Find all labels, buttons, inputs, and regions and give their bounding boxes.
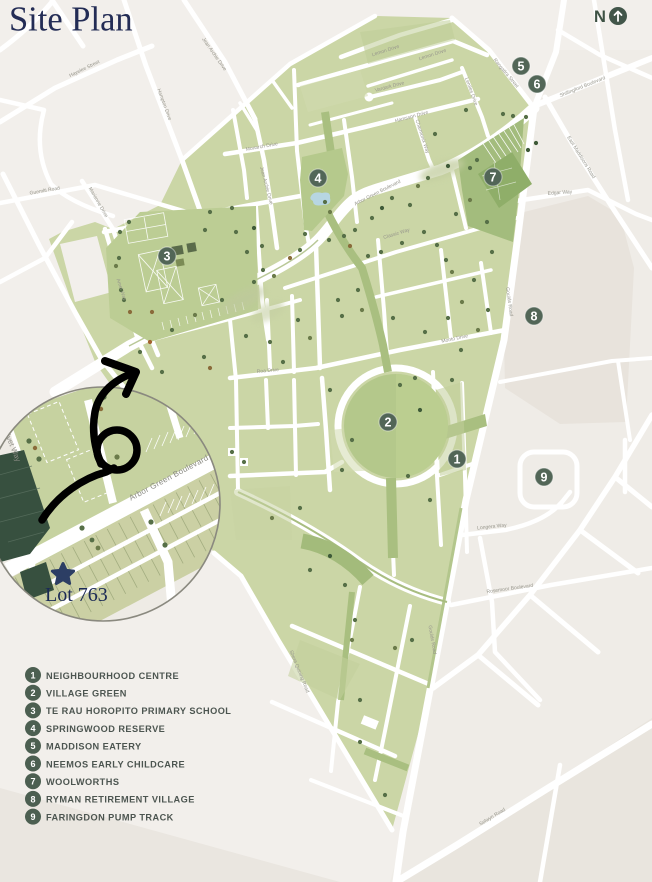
svg-text:NEIGHBOURHOOD CENTRE: NEIGHBOURHOOD CENTRE [46,671,179,681]
svg-text:7: 7 [490,171,497,185]
svg-text:N: N [594,8,606,26]
svg-text:1: 1 [30,670,35,680]
svg-text:6: 6 [534,78,541,92]
svg-text:8: 8 [30,794,35,804]
svg-text:3: 3 [30,706,35,716]
svg-text:MADDISON EATERY: MADDISON EATERY [46,742,142,752]
svg-text:TE RAU HOROPITO PRIMARY SCHOOL: TE RAU HOROPITO PRIMARY SCHOOL [46,706,231,716]
svg-text:8: 8 [531,310,538,324]
svg-text:WOOLWORTHS: WOOLWORTHS [46,777,119,787]
svg-text:NEEMOS EARLY CHILDCARE: NEEMOS EARLY CHILDCARE [46,759,185,769]
svg-text:RYMAN RETIREMENT VILLAGE: RYMAN RETIREMENT VILLAGE [46,795,195,805]
svg-text:6: 6 [30,759,35,769]
svg-text:1: 1 [454,453,461,467]
svg-text:VILLAGE GREEN: VILLAGE GREEN [46,689,127,699]
svg-text:3: 3 [164,250,171,264]
svg-text:9: 9 [30,812,35,822]
svg-text:2: 2 [385,416,392,430]
svg-text:2: 2 [30,688,35,698]
svg-text:5: 5 [518,60,525,74]
svg-text:7: 7 [30,777,35,787]
svg-text:5: 5 [30,741,35,751]
svg-text:SPRINGWOOD RESERVE: SPRINGWOOD RESERVE [46,724,165,734]
svg-text:4: 4 [30,724,35,734]
svg-text:FARINGDON PUMP TRACK: FARINGDON PUMP TRACK [46,812,174,822]
svg-text:Lot 763: Lot 763 [45,584,108,606]
svg-text:Site Plan: Site Plan [9,1,133,39]
svg-text:9: 9 [541,471,548,485]
svg-text:4: 4 [315,172,322,186]
